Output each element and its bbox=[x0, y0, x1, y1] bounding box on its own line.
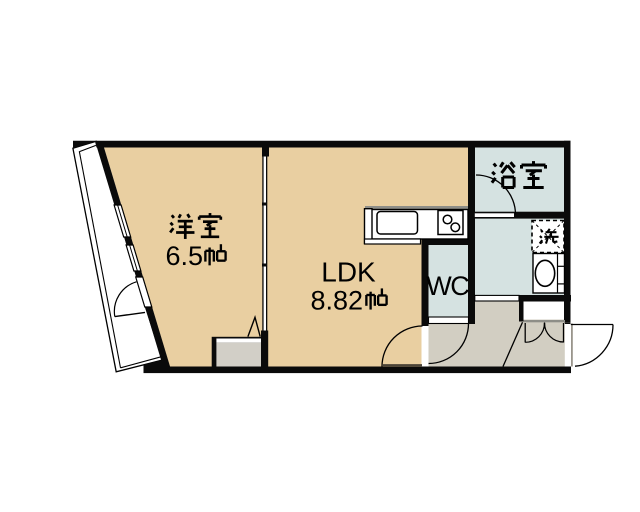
svg-text:8.82: 8.82 bbox=[311, 286, 364, 316]
svg-text:LDK: LDK bbox=[321, 257, 376, 288]
svg-text:6.5: 6.5 bbox=[166, 241, 204, 271]
svg-text:WC: WC bbox=[426, 271, 469, 301]
